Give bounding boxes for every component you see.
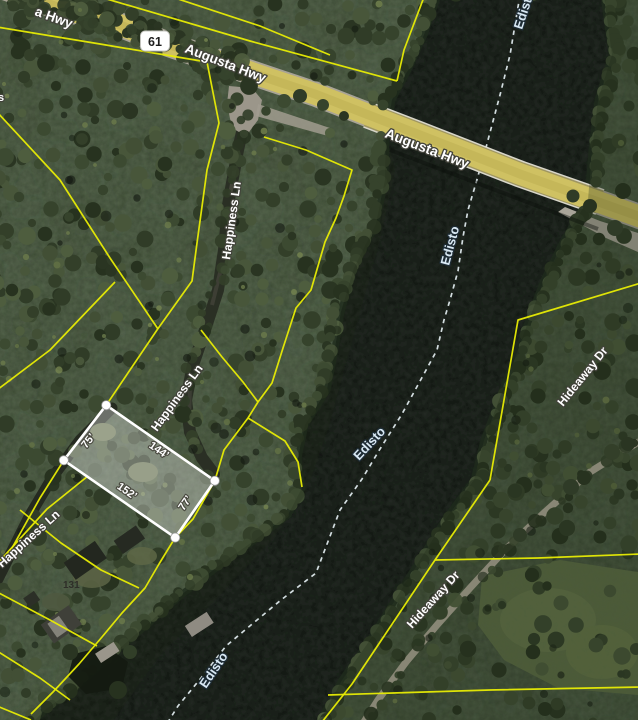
svg-text:131: 131	[63, 580, 80, 591]
svg-text:61: 61	[148, 35, 162, 49]
svg-text:s: s	[0, 92, 4, 104]
